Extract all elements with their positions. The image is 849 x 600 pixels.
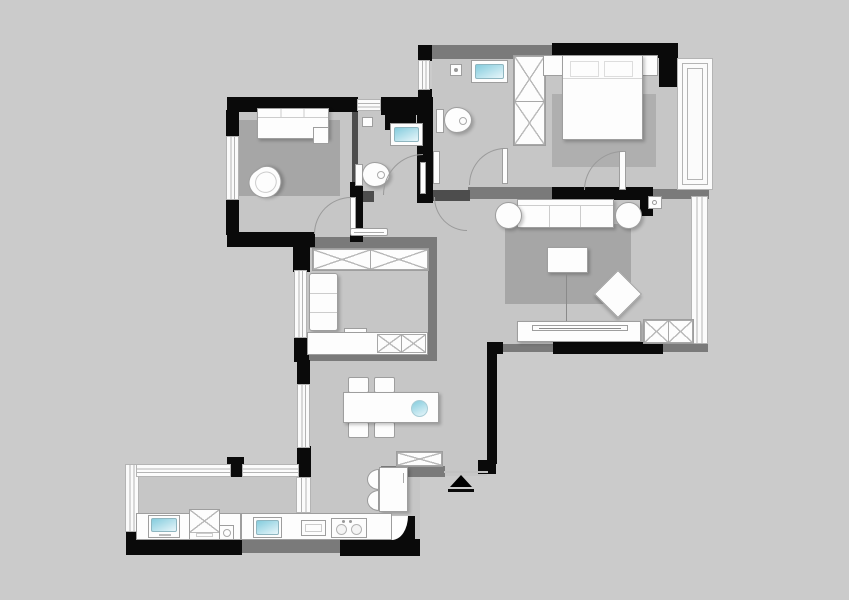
entry-arrow-bar	[448, 489, 474, 492]
side-table-right	[615, 202, 642, 229]
tv	[532, 325, 628, 331]
wall-segment	[662, 344, 708, 352]
window	[297, 384, 310, 448]
refrigerator	[379, 467, 408, 512]
seat-seam	[310, 312, 337, 313]
wall-box	[362, 117, 373, 127]
wardrobe-x	[312, 248, 429, 271]
armchair-seat-line	[251, 167, 281, 197]
sink-bowl	[256, 520, 279, 535]
chair	[374, 377, 395, 393]
wall-segment	[430, 45, 514, 59]
shower-head	[450, 64, 462, 76]
seat-seam	[310, 293, 337, 294]
wall-segment	[418, 89, 432, 101]
dining-table	[343, 392, 439, 423]
basin-stand	[159, 534, 171, 536]
nightstand-left	[543, 55, 564, 76]
basin-bowl	[475, 64, 504, 79]
sofa-seat	[518, 205, 613, 227]
wall-unit	[648, 196, 662, 209]
wardrobe-x	[513, 55, 546, 146]
drainer-board	[301, 520, 326, 536]
wardrobe-cell	[370, 249, 428, 270]
basin-bowl	[151, 518, 177, 532]
pillow	[604, 61, 633, 77]
fridge-handle	[403, 473, 404, 483]
wall-segment	[487, 352, 497, 464]
kitchen-sink	[253, 517, 282, 538]
water-heater-dial	[223, 529, 231, 537]
wardrobe-cell	[514, 56, 545, 102]
wall-segment	[659, 43, 678, 87]
coffee-table	[547, 247, 588, 273]
wall-segment	[428, 248, 437, 360]
wall-segment	[418, 45, 432, 61]
double-bed	[562, 55, 643, 140]
sofa	[517, 199, 614, 228]
lazy-susan	[411, 400, 428, 417]
cabinet-cell	[397, 452, 442, 466]
wall-segment	[303, 237, 437, 248]
burner	[336, 524, 347, 535]
side-table-left	[495, 202, 522, 229]
cabinet-cell	[644, 320, 669, 343]
tv-cable-line	[566, 273, 567, 326]
wardrobe-cell	[313, 249, 371, 270]
basin-bowl	[394, 127, 419, 142]
bay-window	[677, 58, 713, 190]
window	[418, 60, 430, 90]
side-cushion	[313, 127, 329, 144]
wall-segment	[158, 539, 242, 555]
ceiling-lamp	[350, 228, 388, 236]
wall-segment	[238, 539, 340, 553]
sliding-partition	[296, 477, 311, 513]
wardrobe-cell	[514, 101, 545, 145]
knob	[349, 520, 352, 523]
entry-arrow	[450, 475, 472, 487]
drainer-inner	[305, 524, 322, 532]
wall-segment	[297, 446, 311, 478]
toilet-tank	[436, 109, 444, 133]
window	[136, 464, 231, 477]
seat	[309, 273, 338, 331]
water-heater	[219, 525, 234, 540]
toilet-drain	[459, 117, 467, 125]
cabinet-cell	[401, 334, 426, 353]
entry-threshold-line	[444, 471, 488, 473]
window	[226, 136, 239, 200]
laundry-basin	[148, 515, 180, 538]
counter	[307, 332, 428, 355]
shoe-cabinet-x	[396, 451, 443, 467]
bay-window-frame	[687, 68, 703, 180]
cabinet-cell	[377, 334, 402, 353]
floor-plan	[0, 0, 849, 600]
window	[294, 270, 307, 338]
chair	[348, 422, 369, 438]
wall-segment	[297, 360, 310, 386]
knob	[342, 520, 345, 523]
bed-headboard-line	[563, 78, 642, 79]
cabinet-cell	[668, 320, 693, 343]
wall-unit-dot	[652, 200, 657, 205]
floor-corridor	[437, 248, 487, 362]
pillow	[570, 61, 599, 77]
toilet-drain	[377, 171, 385, 179]
window	[357, 99, 381, 111]
cooktop-2-burner	[331, 518, 367, 538]
cabinet-x	[643, 319, 694, 344]
window	[242, 464, 299, 477]
washing-machine	[189, 509, 220, 540]
wall-segment	[468, 187, 554, 199]
wall-segment	[503, 344, 553, 352]
daybed-backrest	[258, 109, 328, 118]
washer-top	[190, 510, 219, 533]
wash-basin	[471, 60, 508, 83]
ceiling-lamp-line	[354, 232, 384, 233]
washer-panel	[196, 533, 213, 537]
chair	[374, 422, 395, 438]
burner	[351, 524, 362, 535]
door-post	[433, 151, 440, 184]
chair	[348, 377, 369, 393]
wall-segment	[226, 110, 239, 137]
tv-screen-line	[539, 328, 621, 329]
shower-head-dot	[454, 68, 458, 72]
wall-segment	[293, 237, 310, 272]
wall-segment	[226, 199, 239, 235]
wash-basin	[390, 123, 423, 146]
